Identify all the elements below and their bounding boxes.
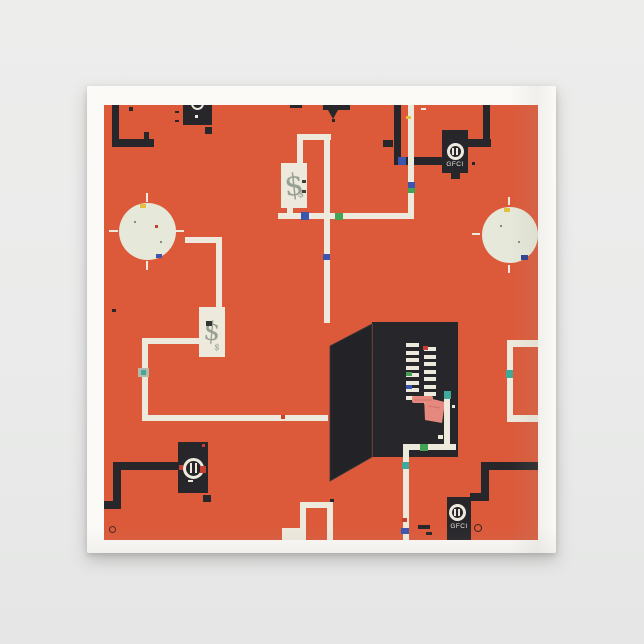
print-speck	[281, 415, 285, 419]
breaker-flag-blue	[406, 385, 412, 389]
wire-connector-blue	[156, 254, 162, 258]
print-speck	[438, 435, 443, 439]
wire-connector-blue	[401, 528, 409, 534]
cream-wire	[444, 395, 450, 448]
cream-wire	[287, 208, 293, 217]
cream-wire	[142, 338, 148, 421]
print-speck	[500, 225, 502, 227]
wire-connector-blue	[398, 157, 406, 165]
print-speck	[155, 225, 158, 228]
cream-wire	[403, 444, 456, 450]
wire-connector-blue	[301, 212, 309, 220]
cream-wire	[408, 105, 414, 219]
wire-connector-green	[420, 444, 428, 451]
wire-connector-navy	[521, 255, 528, 260]
print-speck	[518, 241, 520, 243]
cream-wire	[324, 134, 330, 323]
wire-connector-yellow	[504, 208, 510, 212]
wire-connector-teal	[141, 370, 146, 375]
wire-connector-yellow	[140, 204, 146, 208]
wire-connector-green	[335, 213, 343, 220]
cream-wire	[513, 340, 538, 347]
napkin-print-circuit-pattern: GFCI GFCI $ $ $ $	[104, 105, 538, 540]
cream-wire	[327, 502, 333, 540]
hand-icon	[104, 105, 538, 540]
print-speck	[406, 116, 411, 119]
product-photo-background: GFCI GFCI $ $ $ $	[0, 0, 644, 644]
cream-wire	[142, 415, 328, 421]
wire-connector-teal	[402, 462, 409, 469]
cropped-print-element	[282, 528, 303, 540]
breaker-flag-red	[423, 346, 428, 350]
cream-wire	[216, 237, 222, 308]
wire-connector-green	[408, 188, 415, 193]
wire-connector-blue	[323, 254, 330, 260]
cream-wire	[403, 444, 409, 540]
wire-connector-red	[402, 518, 407, 522]
paper-napkin: GFCI GFCI $ $ $ $	[87, 86, 556, 553]
print-speck	[452, 405, 455, 408]
cream-wire	[507, 340, 513, 422]
print-speck	[421, 108, 426, 110]
wire-connector-teal	[444, 391, 451, 399]
wire-connector-teal	[506, 370, 513, 378]
breaker-flag-green	[406, 372, 412, 376]
cream-wire	[148, 338, 200, 344]
print-speck	[134, 221, 136, 223]
cream-wire	[278, 213, 414, 219]
cream-wire	[507, 415, 538, 422]
print-speck	[160, 241, 162, 243]
